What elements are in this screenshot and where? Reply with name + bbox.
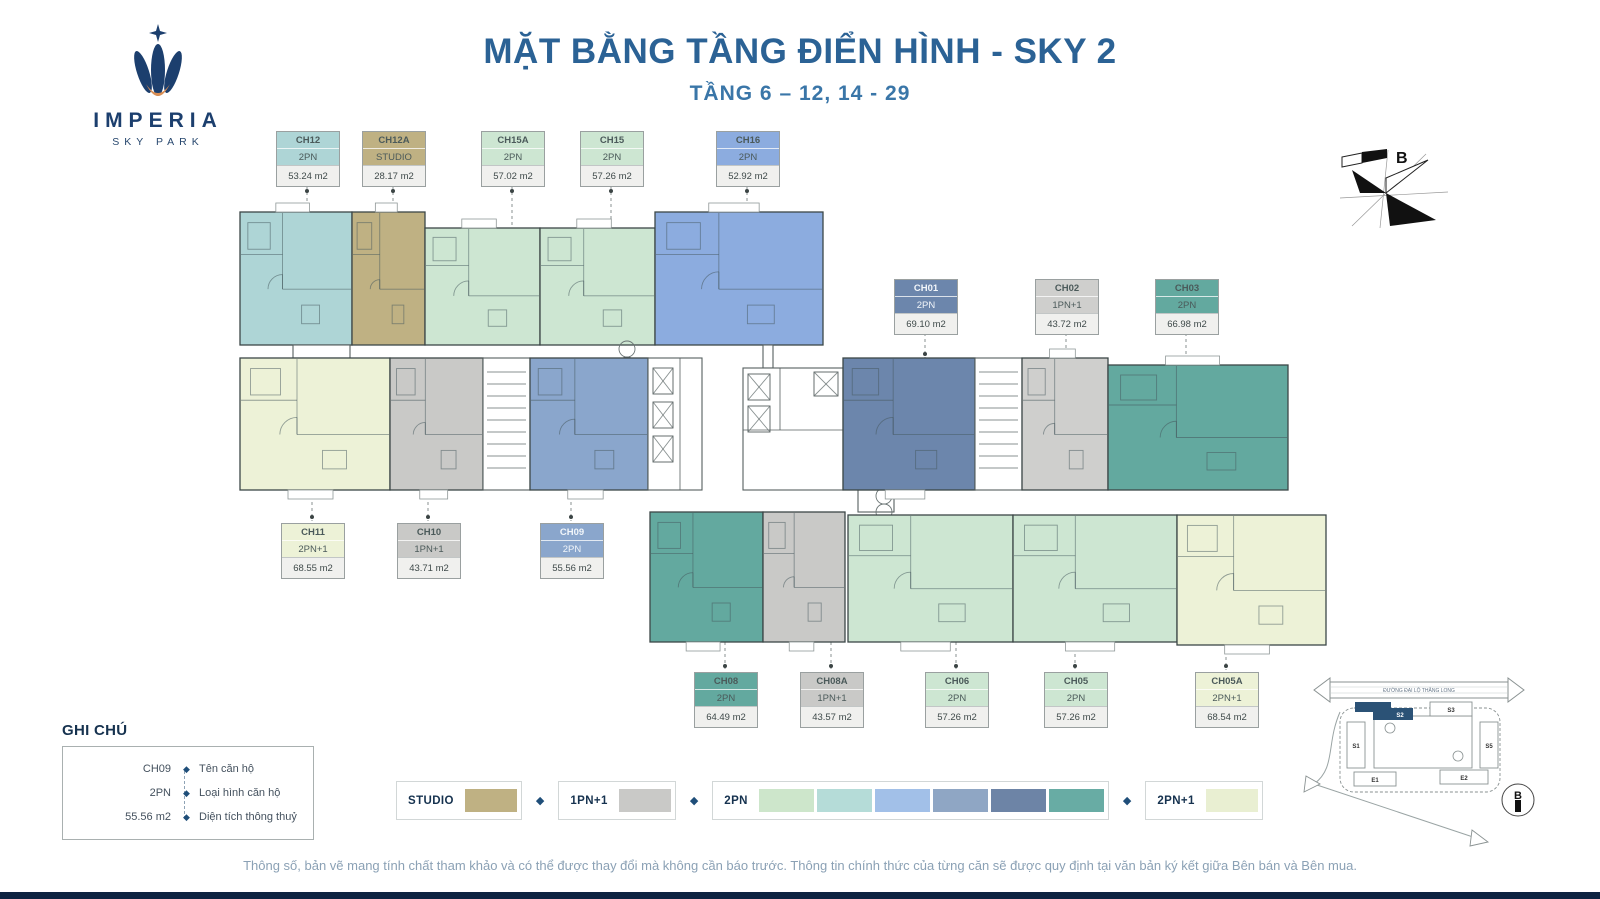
sitemap-road-label: ĐƯỜNG ĐẠI LỘ THĂNG LONG [1383, 687, 1455, 694]
unit-area: 57.26 m2 [581, 165, 643, 186]
stairwell-east [975, 358, 1022, 490]
disclaimer-text: Thông số, bản vẽ mang tính chất tham khả… [0, 858, 1600, 873]
unit-area: 52.92 m2 [717, 165, 779, 186]
unit-code: CH11 [282, 524, 344, 541]
wing-top [240, 212, 823, 345]
unit-label-CH01[interactable]: CH01 2PN 69.10 m2 [894, 279, 958, 335]
unit-type: 2PN [1156, 297, 1218, 313]
floorplan-page: IMPERIA SKY PARK MẶT BẰNG TẦNG ĐIỂN HÌNH… [0, 0, 1600, 899]
notes-legend-row: 2PN ◆ Loại hình căn hộ [73, 781, 303, 805]
unit-code: CH12 [277, 132, 339, 149]
unit-code: CH02 [1036, 280, 1098, 297]
stairwell-west [483, 358, 530, 490]
sitemap-building-s5-label: S5 [1485, 744, 1493, 750]
unit-type: 2PN [482, 149, 544, 165]
unit-type: 2PN [695, 690, 757, 706]
legend-swatch-2pn-3 [875, 789, 930, 812]
note-desc-area: Diện tích thông thuỷ [199, 811, 303, 823]
unit-type: STUDIO [363, 149, 425, 165]
unit-area: 53.24 m2 [277, 165, 339, 186]
legend-item-2pn1: 2PN+1 [1145, 781, 1262, 820]
unit-shape-CH10[interactable] [390, 358, 483, 490]
unit-label-CH08A[interactable]: CH08A 1PN+1 43.57 m2 [800, 672, 864, 728]
unit-shape-CH11[interactable] [240, 358, 390, 490]
unit-area: 55.56 m2 [541, 557, 603, 578]
unit-shape-CH01[interactable] [843, 358, 975, 490]
unit-type: 2PN [1045, 690, 1107, 706]
unit-area: 43.57 m2 [801, 706, 863, 727]
note-sample-code: CH09 [73, 763, 183, 775]
note-desc-type: Loại hình căn hộ [199, 787, 303, 799]
legend-swatch-2pn-5 [991, 789, 1046, 812]
sitemap-building-s3-label: S3 [1447, 708, 1455, 714]
unit-label-CH10[interactable]: CH10 1PN+1 43.71 m2 [397, 523, 461, 579]
legend-item-2pn: 2PN [712, 781, 1109, 820]
unit-label-CH06[interactable]: CH06 2PN 57.26 m2 [925, 672, 989, 728]
notes-legend-title: GHI CHÚ [62, 722, 314, 739]
unit-label-CH16[interactable]: CH16 2PN 52.92 m2 [716, 131, 780, 187]
bottom-accent-bar [0, 892, 1600, 899]
unit-label-CH05A[interactable]: CH05A 2PN+1 68.54 m2 [1195, 672, 1259, 728]
unit-label-CH05[interactable]: CH05 2PN 57.26 m2 [1044, 672, 1108, 728]
unit-label-CH12A[interactable]: CH12A STUDIO 28.17 m2 [362, 131, 426, 187]
unit-area: 57.26 m2 [1045, 706, 1107, 727]
legend-label-1pn1: 1PN+1 [570, 795, 607, 807]
sitemap: ĐƯỜNG ĐẠI LỘ THĂNG LONG S2 S3 S1 S5 E1 E… [1304, 678, 1534, 846]
unit-code: CH16 [717, 132, 779, 149]
unit-shape-CH12[interactable] [240, 212, 352, 345]
unit-shape-CH02[interactable] [1022, 358, 1108, 490]
unit-area: 43.71 m2 [398, 557, 460, 578]
unit-type: 2PN [895, 297, 957, 313]
sitemap-building-s2 [1355, 702, 1413, 720]
legend-swatch-1pn1 [619, 789, 671, 812]
unit-code: CH15A [482, 132, 544, 149]
legend-item-1pn1: 1PN+1 [558, 781, 675, 820]
sitemap-building-e2-label: E2 [1460, 776, 1468, 782]
unit-code: CH08 [695, 673, 757, 690]
legend-swatch-group-2pn [759, 789, 1104, 812]
unit-code: CH06 [926, 673, 988, 690]
sitemap-building-s1-label: S1 [1352, 744, 1360, 750]
unit-shape-CH08A[interactable] [763, 512, 845, 642]
wing-middle [240, 358, 1288, 490]
unit-type: 2PN [717, 149, 779, 165]
diamond-bullet-icon: ◆ [183, 788, 199, 799]
unit-area: 69.10 m2 [895, 313, 957, 334]
unit-type: 1PN+1 [1036, 297, 1098, 313]
notes-legend-box: CH09 ◆ Tên căn hộ 2PN ◆ Loại hình căn hộ… [62, 746, 314, 840]
legend-label-studio: STUDIO [408, 795, 454, 807]
unit-label-CH02[interactable]: CH02 1PN+1 43.72 m2 [1035, 279, 1099, 335]
legend-swatch-2pn-6 [1049, 789, 1104, 812]
diamond-bullet-icon: ◆ [183, 812, 199, 823]
type-color-legend: STUDIO ◆ 1PN+1 ◆ 2PN ◆ 2PN+1 [396, 781, 1263, 820]
unit-shape-CH03[interactable] [1108, 365, 1288, 490]
unit-label-CH03[interactable]: CH03 2PN 66.98 m2 [1155, 279, 1219, 335]
compass-rose: B [1340, 149, 1448, 228]
unit-shape-CH12A[interactable] [352, 212, 425, 345]
unit-label-CH15[interactable]: CH15 2PN 57.26 m2 [580, 131, 644, 187]
unit-type: 1PN+1 [801, 690, 863, 706]
unit-area: 43.72 m2 [1036, 313, 1098, 334]
unit-area: 28.17 m2 [363, 165, 425, 186]
unit-shape-CH08[interactable] [650, 512, 763, 642]
unit-shape-CH09[interactable] [530, 358, 648, 490]
legend-swatch-2pn-4 [933, 789, 988, 812]
note-sample-type: 2PN [73, 787, 183, 799]
diamond-separator-icon: ◆ [676, 794, 712, 807]
unit-code: CH10 [398, 524, 460, 541]
unit-label-CH15A[interactable]: CH15A 2PN 57.02 m2 [481, 131, 545, 187]
note-sample-area: 55.56 m2 [73, 811, 183, 823]
legend-swatch-2pn-1 [759, 789, 814, 812]
unit-type: 2PN+1 [282, 541, 344, 557]
diamond-separator-icon: ◆ [522, 794, 558, 807]
unit-type: 2PN+1 [1196, 690, 1258, 706]
wing-bottom [650, 512, 1326, 645]
legend-swatch-2pn-2 [817, 789, 872, 812]
legend-swatch-studio [465, 789, 517, 812]
unit-type: 2PN [277, 149, 339, 165]
unit-area: 68.54 m2 [1196, 706, 1258, 727]
unit-code: CH12A [363, 132, 425, 149]
unit-label-CH11[interactable]: CH11 2PN+1 68.55 m2 [281, 523, 345, 579]
legend-item-studio: STUDIO [396, 781, 522, 820]
legend-swatch-2pn1 [1206, 789, 1258, 812]
sitemap-building-s2-label: S2 [1396, 713, 1404, 719]
unit-area: 66.98 m2 [1156, 313, 1218, 334]
unit-area: 68.55 m2 [282, 557, 344, 578]
unit-code: CH01 [895, 280, 957, 297]
notes-legend-row: CH09 ◆ Tên căn hộ [73, 757, 303, 781]
legend-label-2pn1: 2PN+1 [1157, 795, 1194, 807]
unit-area: 64.49 m2 [695, 706, 757, 727]
compass-north-label: B [1396, 150, 1408, 167]
unit-label-CH08[interactable]: CH08 2PN 64.49 m2 [694, 672, 758, 728]
unit-code: CH08A [801, 673, 863, 690]
unit-label-CH09[interactable]: CH09 2PN 55.56 m2 [540, 523, 604, 579]
diamond-bullet-icon: ◆ [183, 764, 199, 775]
sitemap-building-e1-label: E1 [1371, 778, 1379, 784]
unit-area: 57.02 m2 [482, 165, 544, 186]
note-desc-code: Tên căn hộ [199, 763, 303, 775]
unit-code: CH15 [581, 132, 643, 149]
unit-shape-CH16[interactable] [655, 212, 823, 345]
unit-code: CH09 [541, 524, 603, 541]
notes-legend: GHI CHÚ CH09 ◆ Tên căn hộ 2PN ◆ Loại hìn… [62, 722, 314, 840]
unit-shape-CH05[interactable] [1013, 515, 1177, 642]
unit-area: 57.26 m2 [926, 706, 988, 727]
unit-type: 1PN+1 [398, 541, 460, 557]
unit-type: 2PN [926, 690, 988, 706]
legend-label-2pn: 2PN [724, 795, 748, 807]
unit-type: 2PN [581, 149, 643, 165]
unit-shape-CH15A[interactable] [425, 228, 540, 345]
unit-label-CH12[interactable]: CH12 2PN 53.24 m2 [276, 131, 340, 187]
unit-code: CH05 [1045, 673, 1107, 690]
unit-shape-CH05A[interactable] [1177, 515, 1326, 645]
unit-type: 2PN [541, 541, 603, 557]
unit-shape-CH15[interactable] [540, 228, 655, 345]
notes-legend-row: 55.56 m2 ◆ Diện tích thông thuỷ [73, 805, 303, 829]
diamond-separator-icon: ◆ [1109, 794, 1145, 807]
unit-code: CH05A [1196, 673, 1258, 690]
unit-code: CH03 [1156, 280, 1218, 297]
unit-shape-CH06[interactable] [848, 515, 1013, 642]
